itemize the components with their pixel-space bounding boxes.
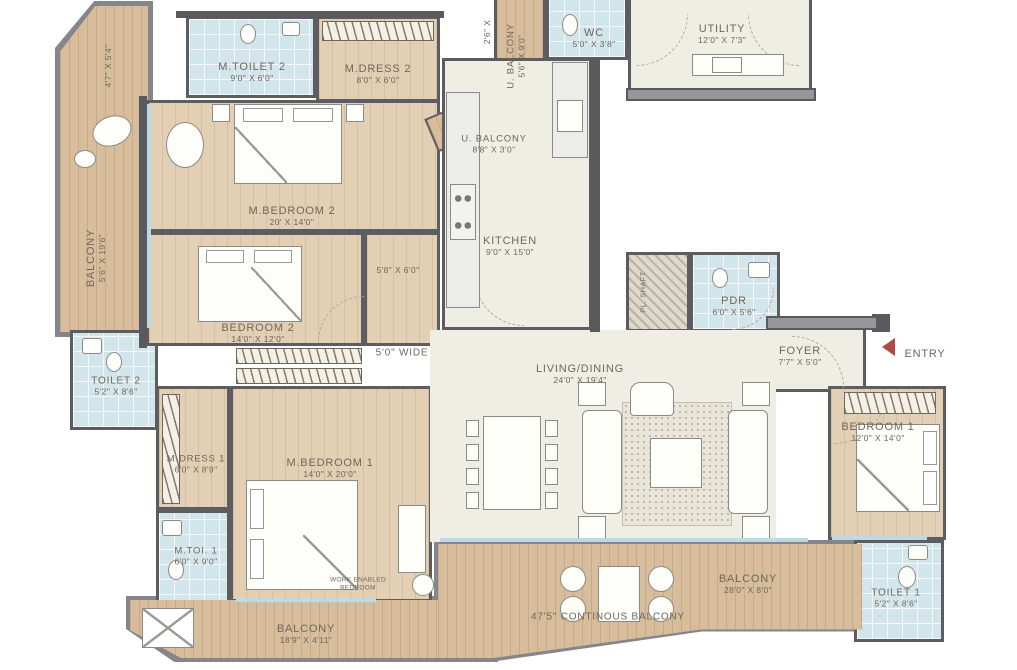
- label-foyer: FOYER 7'7" X 5'0": [779, 345, 822, 367]
- label-toilet-2: TOILET 2 5'2" X 8'6": [91, 376, 140, 397]
- label-continuous-balcony: 47'5" CONTINOUS BALCONY: [531, 612, 685, 623]
- wall-kitchen-east: [590, 58, 600, 332]
- toilet-fixture-toilet-1: [898, 566, 916, 588]
- room-passage-vestibule: [364, 232, 440, 346]
- wall-cap-foyer: [766, 316, 878, 330]
- label-balcony-bottom-left: BALCONY 18'9" X 4'11": [277, 623, 335, 645]
- nightstand-m-bedroom-2-right: [346, 104, 364, 122]
- ac-ledge-box: [142, 608, 194, 648]
- room-pl-shaft: [626, 252, 690, 332]
- dining-chair-7: [545, 468, 558, 485]
- toilet-fixture-m-toilet-2: [240, 24, 256, 44]
- wall-west-bedrooms: [139, 96, 147, 348]
- label-u-balcony-front: U. BALCONY 8'8" X 3'0": [461, 134, 527, 155]
- basin-toilet-1: [908, 545, 928, 560]
- sliding-glass-living: [440, 538, 808, 542]
- dining-chair-5: [545, 420, 558, 437]
- sofa-left: [582, 410, 622, 514]
- balcony-chair-3: [648, 566, 674, 592]
- toilet-fixture-pdr: [712, 268, 728, 288]
- label-balcony-bottom-right: BALCONY 28'0" X 8'0": [719, 573, 777, 595]
- sofa-right: [728, 410, 768, 514]
- basin-pdr: [748, 262, 770, 278]
- label-balcony-left: BALCONY 5'6" X 19'6": [85, 229, 107, 287]
- label-dim-left: 4'7" X 5'4": [103, 45, 113, 88]
- label-passage-width: 5'0" WIDE: [376, 348, 429, 359]
- wardrobe-m-dress-2: [322, 21, 434, 41]
- label-kitchen: KITCHEN 9'0" X 15'0": [483, 235, 537, 257]
- label-m-dress-2: M.DRESS 2 8'0" X 6'0": [345, 63, 412, 85]
- label-dim-top: 2'6" X: [482, 20, 492, 45]
- wall-top-suite: [176, 11, 444, 18]
- sliding-glass-balcony-left: [147, 104, 151, 328]
- basin-toilet-2: [82, 338, 102, 354]
- basin-m-toilet-2: [282, 22, 300, 36]
- basin-m-toi-1: [162, 520, 182, 536]
- bed-bedroom-2: [198, 246, 302, 322]
- wardrobe-m-dress-1-b: [236, 368, 362, 384]
- balcony-chair-1: [560, 566, 586, 592]
- label-u-balcony-side: U. BALCONY 5'6" X 9'0": [506, 23, 527, 89]
- label-m-toilet-2: M.TOILET 2 9'0" X 6'0": [218, 61, 286, 83]
- sliding-glass-bedroom-1: [832, 536, 927, 540]
- washing-machine: [712, 57, 742, 73]
- entry-arrow-icon: [882, 338, 895, 356]
- dining-table: [483, 416, 541, 510]
- desk-chair-m-bedroom-1: [412, 574, 434, 596]
- toilet-fixture-toilet-2: [106, 352, 122, 372]
- wall-cap-utility: [626, 88, 816, 101]
- label-pl-shaft: PL. SHAFT: [639, 271, 648, 313]
- label-pdr: PDR 6'0" X 5'6": [713, 295, 756, 317]
- label-m-bedroom-2: M.BEDROOM 2 20' X 14'0": [248, 205, 335, 227]
- floor-plan: BALCONY 5'6" X 19'6" 4'7" X 5'4" M.TOILE…: [0, 0, 1017, 670]
- coffee-table: [650, 438, 702, 488]
- balcony-left-stool: [74, 150, 96, 168]
- dining-chair-3: [466, 468, 479, 485]
- label-entry: ENTRY: [904, 348, 945, 360]
- dining-chair-2: [466, 444, 479, 461]
- label-m-toi-1: M.TOI. 1 6'0" X 9'0": [174, 546, 217, 567]
- label-bedroom-1: BEDROOM 1 12'0" X 14'0": [841, 421, 914, 443]
- label-utility: UTILITY 12'0" X 7'3": [698, 23, 746, 45]
- label-m-bedroom-1: M.BEDROOM 1 14'0" X 20'0": [286, 457, 373, 479]
- kitchen-stove: [450, 184, 476, 240]
- kitchen-sink: [557, 100, 583, 132]
- side-table-plant-4: [742, 516, 770, 540]
- dining-chair-8: [545, 492, 558, 509]
- wardrobe-m-dress-1-side: [162, 394, 180, 504]
- armchair-living: [630, 382, 674, 416]
- wardrobe-m-dress-1-a: [236, 348, 362, 364]
- wardrobe-bedroom-1: [844, 392, 936, 414]
- label-living-dining: LIVING/DINING 24'0" X 19'4": [536, 363, 624, 385]
- side-table-plant-3: [578, 516, 606, 540]
- armchair-m-bedroom-2: [166, 122, 204, 168]
- label-toilet-1: TOILET 1 5'2" X 8'6": [871, 588, 920, 609]
- desk-m-bedroom-1: [398, 505, 426, 573]
- side-table-plant-2: [742, 382, 770, 406]
- label-work-enabled: WORK ENABLED BEDROOM: [330, 577, 386, 592]
- dining-chair-1: [466, 420, 479, 437]
- dining-chair-6: [545, 444, 558, 461]
- bed-m-bedroom-1: [246, 480, 358, 590]
- label-passage-dim: 5'8" X 6'0": [377, 265, 420, 275]
- dining-chair-4: [466, 492, 479, 509]
- side-table-plant-1: [578, 382, 606, 406]
- label-m-dress-1: M.DRESS 1 6'0" X 8'9": [167, 454, 225, 475]
- label-wc: WC 5'0" X 3'8": [573, 27, 616, 49]
- label-bedroom-2: BEDROOM 2 14'0" X 12'0": [221, 322, 294, 344]
- nightstand-m-bedroom-2-left: [212, 104, 230, 122]
- bed-m-bedroom-2: [234, 104, 342, 184]
- sliding-glass-m-bedroom-1: [236, 598, 376, 602]
